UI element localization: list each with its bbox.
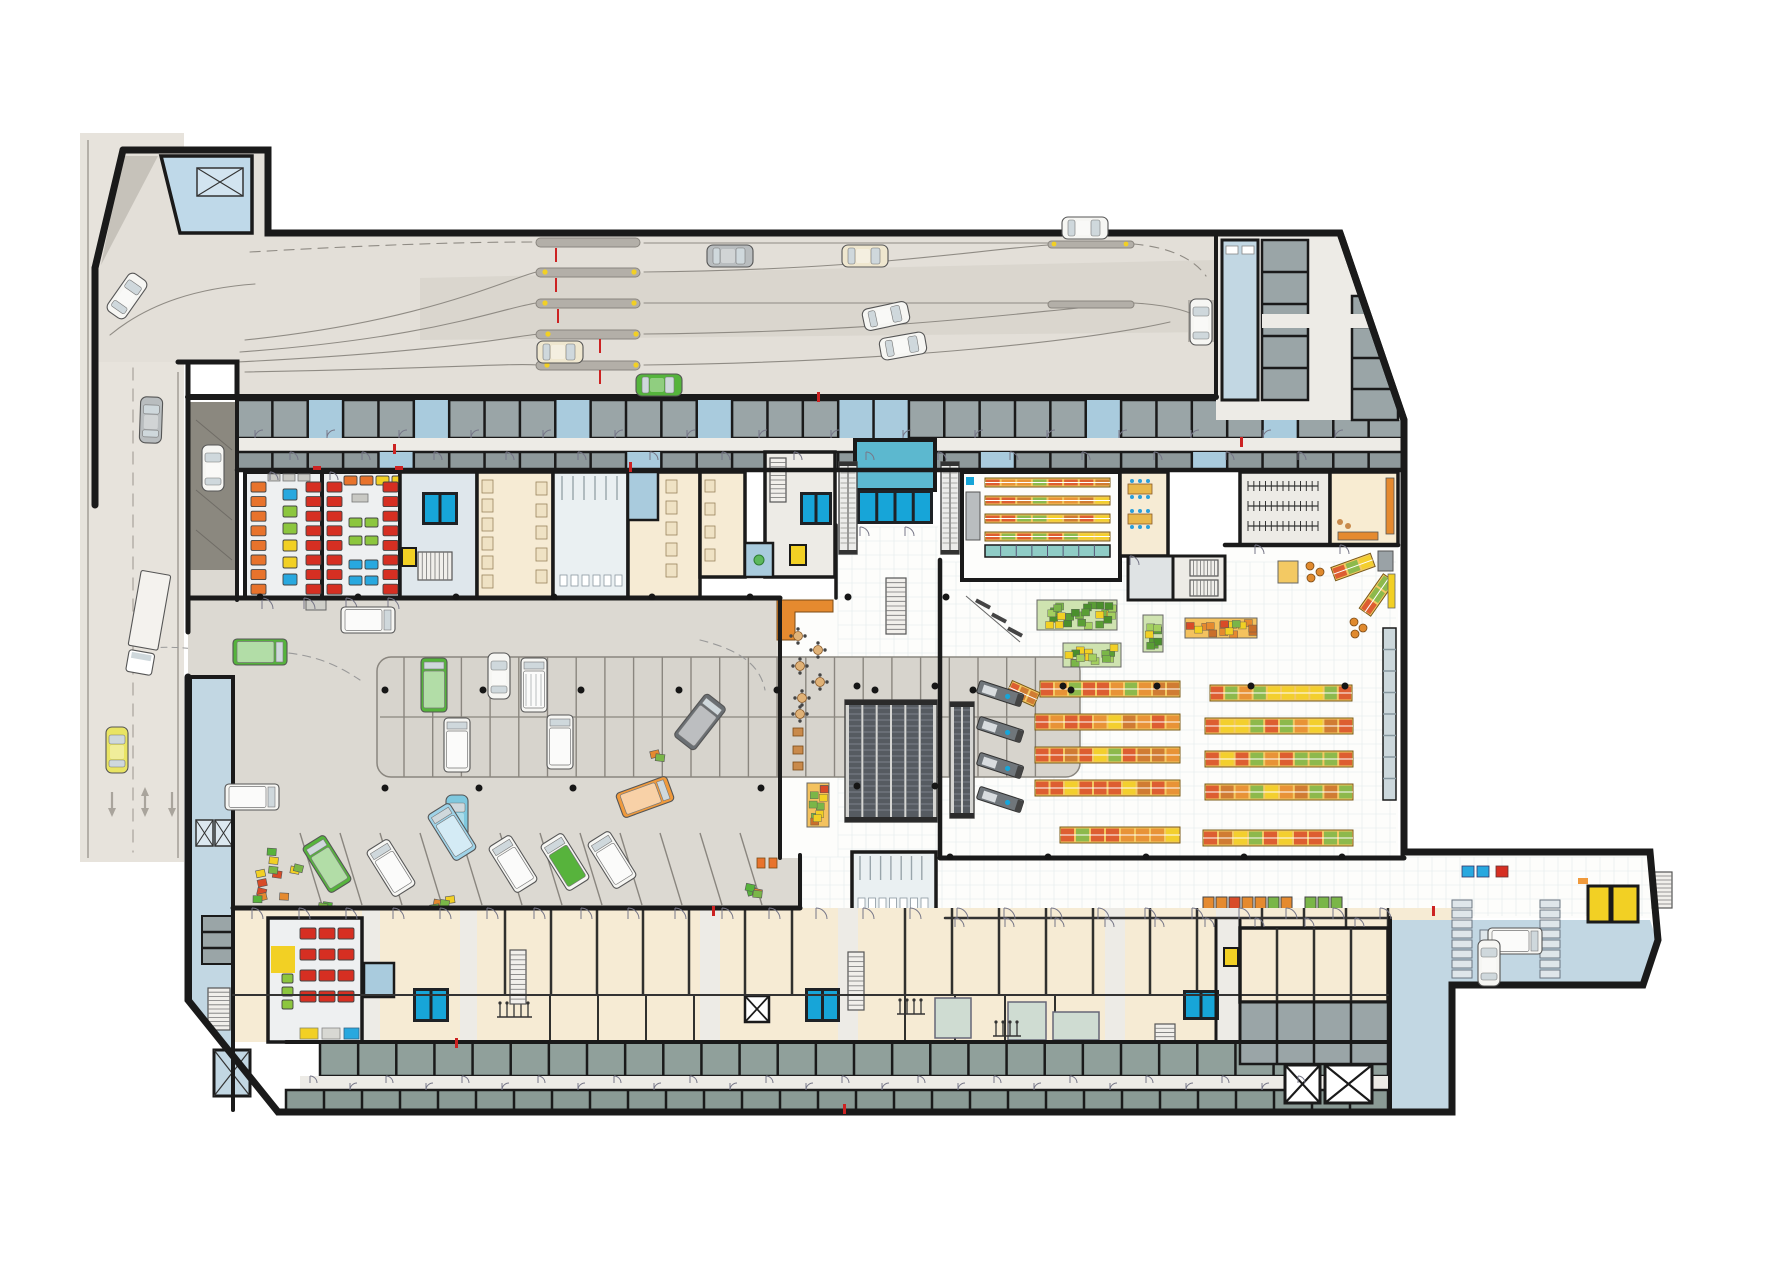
fire-door-mark xyxy=(712,906,715,916)
service-corridor xyxy=(1222,240,1258,400)
duct xyxy=(402,548,416,566)
shelf-row xyxy=(1203,830,1353,846)
van xyxy=(521,658,547,712)
elevator-pair xyxy=(413,988,449,1022)
fire-door-mark xyxy=(395,466,403,470)
service-nook xyxy=(271,946,295,973)
lane-island xyxy=(1048,241,1134,248)
van xyxy=(444,718,470,772)
wet-room xyxy=(364,963,394,997)
table-set xyxy=(1128,479,1152,499)
freight-elevator xyxy=(1612,886,1638,922)
elevator-pair xyxy=(805,988,840,1022)
shelf-row xyxy=(985,514,1110,523)
display xyxy=(1278,561,1298,583)
escalator xyxy=(839,462,857,554)
travelator-bank xyxy=(845,700,937,822)
elevator-shaft-icon xyxy=(215,820,232,846)
shelf-row xyxy=(985,532,1110,541)
chair-row xyxy=(282,974,293,1009)
bench xyxy=(1496,866,1508,877)
car xyxy=(1478,940,1500,986)
fire-door-mark xyxy=(1240,437,1243,447)
counter xyxy=(966,492,980,540)
table-set xyxy=(1128,509,1152,529)
van xyxy=(233,639,287,665)
elevator-pair xyxy=(800,492,832,525)
storage-cells xyxy=(202,916,233,964)
shelf-row xyxy=(1035,747,1180,763)
play-figure xyxy=(754,555,764,565)
staircase xyxy=(770,458,786,502)
floor-plan xyxy=(0,0,1772,1265)
freight-elevator xyxy=(1588,886,1610,922)
lane-island xyxy=(1048,301,1134,308)
escalator xyxy=(941,462,959,554)
elevator-shaft-icon xyxy=(196,820,213,846)
bench xyxy=(1477,866,1489,877)
fire-door-mark xyxy=(455,1038,458,1048)
bin xyxy=(1378,551,1393,571)
car xyxy=(537,341,583,363)
shelf-row xyxy=(1060,827,1180,843)
beverage-shop xyxy=(962,472,1120,580)
plant-machine xyxy=(935,998,971,1038)
shelf-row xyxy=(1035,714,1180,730)
cooler-wall xyxy=(1383,628,1396,800)
car xyxy=(842,245,888,267)
car xyxy=(636,374,682,396)
car xyxy=(707,245,753,267)
car xyxy=(106,727,128,773)
duct xyxy=(790,545,806,565)
staircase xyxy=(848,952,864,1010)
staircase xyxy=(1190,580,1218,596)
bench xyxy=(1462,866,1474,877)
store-room xyxy=(1128,556,1173,600)
produce-display xyxy=(1063,643,1121,667)
plant-machine xyxy=(1053,1012,1099,1040)
lane-island xyxy=(536,299,640,308)
promo-display xyxy=(1185,618,1257,638)
fire-door-mark xyxy=(629,462,632,472)
car xyxy=(202,445,224,491)
furniture xyxy=(858,898,928,909)
fire-door-mark xyxy=(393,444,396,454)
van xyxy=(421,658,447,712)
wet-room xyxy=(628,472,658,520)
shaft-icon xyxy=(197,168,243,196)
staircase xyxy=(418,552,452,580)
shaft-icon xyxy=(745,996,769,1022)
stair-concourse xyxy=(886,578,906,634)
shelf-row xyxy=(1205,784,1353,800)
void-icon xyxy=(1325,1065,1372,1103)
travelator-pair xyxy=(950,702,974,818)
kiosk-shelf xyxy=(807,783,829,827)
cell-corridor xyxy=(300,1076,1388,1090)
lane-island xyxy=(536,268,640,277)
duct xyxy=(1224,948,1238,966)
storage-cells xyxy=(320,1042,1388,1076)
fire-door-mark xyxy=(843,1104,846,1114)
elevator-pair xyxy=(422,492,458,525)
elevator-bank xyxy=(857,490,933,524)
lane-island xyxy=(536,238,640,247)
van xyxy=(341,607,395,633)
fire-door-mark xyxy=(817,392,820,402)
shelf-row xyxy=(1205,751,1353,767)
void-icon xyxy=(1285,1065,1320,1103)
shelf-row xyxy=(985,478,1110,487)
van xyxy=(225,784,279,810)
fire-door-mark xyxy=(313,466,321,470)
produce-display xyxy=(1037,600,1117,630)
floor-plan-page xyxy=(0,0,1772,1265)
shelf-row xyxy=(1205,718,1353,734)
car xyxy=(488,653,510,699)
shelf-row xyxy=(985,496,1110,505)
storage-cells xyxy=(1240,1002,1388,1064)
car xyxy=(139,397,163,444)
bottle-return xyxy=(985,545,1110,557)
lane-island xyxy=(536,330,640,339)
entrance-lobby xyxy=(855,440,935,490)
shelf-row xyxy=(1210,685,1352,701)
fire-door-mark xyxy=(1432,906,1435,916)
staircase xyxy=(1190,560,1218,576)
car xyxy=(1062,217,1108,239)
car xyxy=(1190,299,1212,345)
van xyxy=(547,715,573,769)
upper-rooms xyxy=(245,452,835,598)
plant-machine xyxy=(1008,1002,1046,1040)
shelf-row xyxy=(1035,780,1180,796)
cell-corridor xyxy=(237,438,1404,452)
produce-display xyxy=(1143,615,1163,652)
